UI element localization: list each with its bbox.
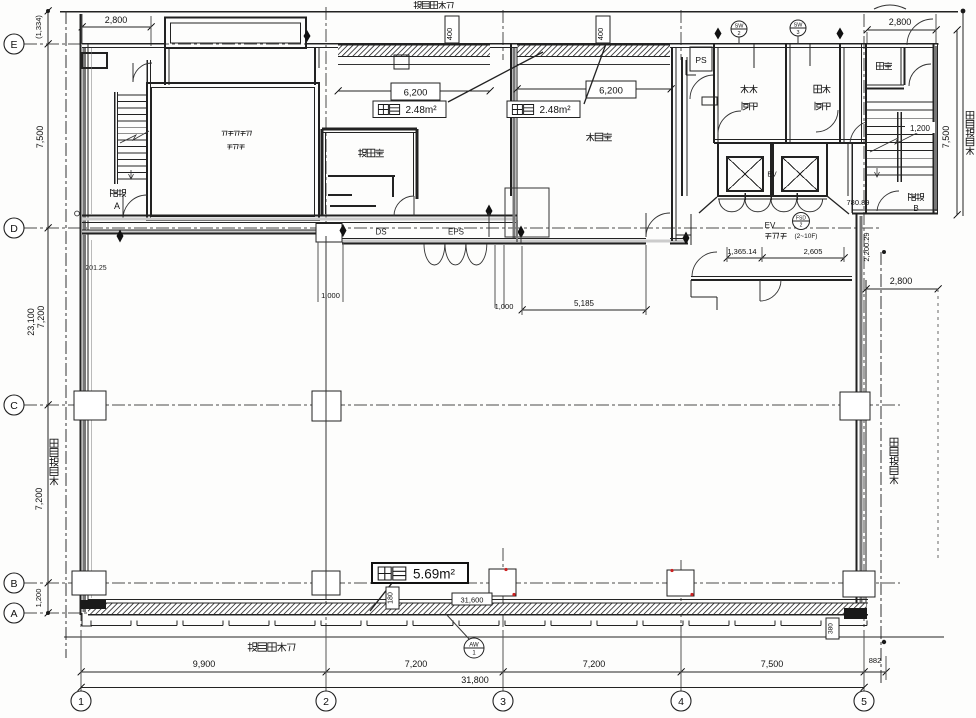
svg-text:3: 3 [500, 696, 506, 708]
svg-text:4: 4 [678, 696, 684, 708]
svg-text:3: 3 [796, 30, 799, 36]
svg-text:7,200: 7,200 [34, 488, 44, 511]
svg-text:2,200.29: 2,200.29 [862, 232, 871, 261]
svg-text:1,200: 1,200 [910, 124, 931, 133]
svg-text:(1,334): (1,334) [34, 15, 43, 39]
svg-text:EV: EV [767, 172, 777, 179]
svg-text:1: 1 [78, 696, 84, 708]
svg-text:2: 2 [737, 31, 740, 37]
svg-text:23,100: 23,100 [26, 308, 36, 336]
svg-text:2,800: 2,800 [105, 15, 128, 25]
svg-text:5: 5 [861, 696, 867, 708]
svg-text:AW: AW [469, 642, 479, 648]
svg-text:201.25: 201.25 [85, 265, 107, 272]
svg-text:2: 2 [323, 696, 329, 708]
svg-text:2.48m²: 2.48m² [405, 105, 437, 116]
svg-text:1,000: 1,000 [495, 302, 514, 311]
svg-text:FSD: FSD [796, 215, 806, 221]
svg-text:2,605: 2,605 [804, 247, 823, 256]
svg-text:1,365.14: 1,365.14 [727, 247, 756, 256]
svg-text:6,200: 6,200 [599, 86, 623, 97]
svg-text:2: 2 [800, 223, 803, 229]
svg-text:E: E [10, 39, 17, 51]
svg-text:A: A [114, 201, 120, 211]
svg-text:1,000: 1,000 [321, 291, 340, 300]
svg-text:5.69m²: 5.69m² [413, 567, 456, 582]
svg-text:SW: SW [735, 23, 745, 29]
svg-text:A: A [10, 608, 17, 620]
svg-text:31,600: 31,600 [461, 596, 484, 605]
svg-text:380: 380 [828, 623, 835, 634]
svg-text:(2~10F): (2~10F) [795, 233, 818, 240]
svg-text:2.48m²: 2.48m² [539, 105, 571, 116]
svg-text:D: D [10, 223, 18, 235]
svg-text:1,200: 1,200 [34, 589, 43, 608]
svg-text:6,200: 6,200 [404, 88, 428, 99]
svg-text:2,800: 2,800 [889, 17, 912, 27]
svg-text:7,200: 7,200 [583, 659, 606, 669]
svg-text:EV: EV [765, 221, 776, 230]
svg-text:7,500: 7,500 [35, 126, 45, 149]
svg-text:EPS: EPS [448, 228, 464, 237]
svg-text:7,500: 7,500 [941, 126, 951, 149]
svg-text:C: C [10, 400, 18, 412]
svg-text:PS: PS [695, 55, 707, 65]
svg-text:9,900: 9,900 [193, 659, 216, 669]
svg-text:2,800: 2,800 [890, 276, 913, 286]
svg-text:400: 400 [596, 28, 605, 41]
svg-text:7,200: 7,200 [36, 306, 46, 329]
svg-text:5,185: 5,185 [574, 299, 595, 308]
svg-text:882: 882 [869, 656, 882, 665]
svg-text:B: B [10, 578, 17, 590]
svg-text:DS: DS [375, 228, 386, 237]
svg-text:31,800: 31,800 [461, 675, 489, 685]
svg-text:SW: SW [794, 22, 804, 28]
svg-text:7,200: 7,200 [405, 659, 428, 669]
svg-text:180: 180 [388, 592, 395, 604]
svg-text:400: 400 [445, 28, 454, 41]
svg-text:B: B [913, 204, 918, 213]
svg-text:7,500: 7,500 [761, 659, 784, 669]
